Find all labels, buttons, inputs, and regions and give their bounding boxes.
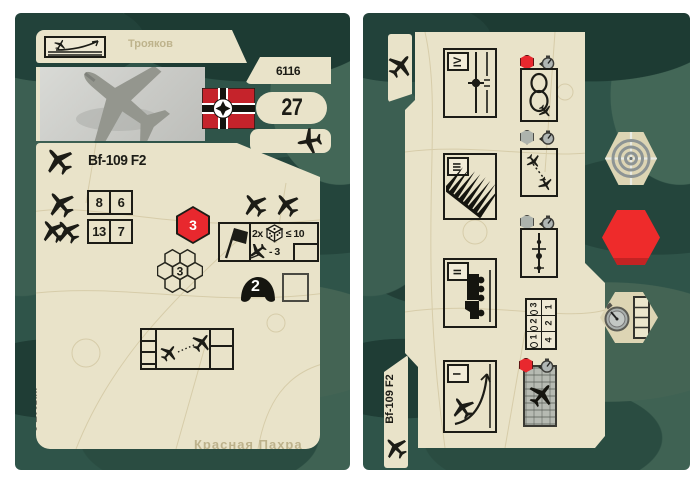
- paired-aircraft-icon: [42, 213, 80, 249]
- attack-empty-cell: [293, 243, 317, 260]
- aircraft-icon: [386, 52, 414, 80]
- aircraft-icon: [383, 435, 409, 461]
- stat-value: 8: [89, 192, 111, 213]
- supply-truck-icon: [448, 270, 496, 322]
- card-tab-title: Bf-109 F2: [384, 355, 408, 468]
- range-value: 2: [543, 321, 553, 326]
- unit-title: Bf-109 F2: [384, 369, 396, 429]
- aircraft-icon: [295, 128, 325, 154]
- phase-box-ii: II: [443, 258, 497, 328]
- dogfight-result-cells: [209, 330, 232, 368]
- stat-value: 7: [111, 221, 131, 242]
- aircraft-photo-frame: [36, 67, 205, 141]
- gray-hex-marker: [520, 130, 534, 145]
- gunfire-icon: [446, 159, 496, 219]
- attack-panel: 2x ≤ 10 - 3: [218, 222, 319, 262]
- point-value-pill: 27: [256, 92, 327, 124]
- range-row: 3 1: [527, 300, 555, 316]
- target-crosshair-token[interactable]: [605, 132, 657, 185]
- maneuver-header: [520, 215, 558, 229]
- dice-icon: [265, 224, 284, 243]
- point-value: 27: [281, 94, 302, 122]
- stopwatch-icon: [536, 358, 555, 373]
- card-body: Красная Пахра Bf-109 F2 8 6: [36, 143, 320, 449]
- range-label: 2: [529, 318, 539, 323]
- stopwatch-track-token[interactable]: [600, 292, 658, 343]
- attack-threshold: ≤ 10: [286, 228, 304, 240]
- maneuver-header: [519, 358, 557, 372]
- unit-code: 6116: [276, 64, 300, 78]
- copyright: © Zvezda: [34, 375, 50, 447]
- morale-empty-box: [282, 273, 309, 302]
- takeoff-icon: [445, 362, 495, 430]
- dogfight-icon: [158, 333, 214, 364]
- unit-title: Bf-109 F2: [88, 152, 146, 169]
- assault-flag-icon: [220, 224, 251, 260]
- strafing-aircraft-icon: [249, 244, 269, 260]
- range-row: 1 4: [527, 332, 555, 348]
- range-value: 1: [543, 305, 553, 310]
- city-attack-icon: [523, 365, 557, 427]
- range-dot-icon: [530, 310, 538, 315]
- formation-value: 3: [177, 265, 184, 279]
- altitude-change-icon: [520, 228, 558, 278]
- aircraft-photo: [40, 67, 205, 141]
- range-dot-icon: [530, 342, 538, 348]
- initiative-hex-marker: 3: [176, 206, 210, 244]
- range-table: 3 1 2 2 1 4: [525, 298, 557, 350]
- initiative-value: 3: [189, 217, 197, 233]
- card-tab-top: [388, 34, 412, 102]
- stat-box: 8 6: [87, 190, 133, 215]
- stat-value: 13: [89, 221, 111, 242]
- maneuver-header: [520, 130, 558, 144]
- unit-type-tab: [250, 129, 331, 153]
- aircraft-climb-icon: [44, 36, 106, 58]
- dogfight-step-track: [142, 330, 157, 368]
- range-value: 4: [543, 337, 553, 342]
- red-hexagon-token[interactable]: [602, 210, 660, 265]
- range-dot-icon: [530, 326, 538, 331]
- helmet-icon: 2: [238, 274, 278, 306]
- patrol-flight-icon: [445, 50, 494, 115]
- range-label: 1: [529, 334, 539, 339]
- attack-roll-row: 2x ≤ 10: [249, 224, 317, 243]
- phase-box-iv: IV: [443, 48, 497, 118]
- attack-modifier: - 3: [269, 246, 280, 258]
- air-combat-icon: [520, 148, 558, 197]
- aircraft-icon: [40, 146, 78, 176]
- stat-box: 13 7: [87, 219, 133, 244]
- phase-box-i: I: [443, 360, 497, 433]
- order-panel: IV III: [405, 32, 605, 448]
- formation-hex-cluster: 3: [157, 245, 203, 297]
- product-scan: Трояков: [0, 0, 700, 480]
- stopwatch-icon: [537, 130, 556, 145]
- maneuver-header: [520, 55, 558, 69]
- aircraft-pair-icon: [241, 191, 303, 219]
- morale-value: 2: [251, 278, 260, 296]
- german-war-flag-icon: [202, 88, 255, 129]
- red-hex-marker: [519, 358, 533, 373]
- map-label: Красная Пахра: [194, 437, 303, 452]
- loop-maneuver-icon: [520, 68, 558, 122]
- phase-box-iii: III: [443, 153, 497, 220]
- unit-code-tab: 6116: [245, 57, 331, 84]
- unit-card[interactable]: Трояков: [15, 13, 350, 470]
- range-row: 2 2: [527, 316, 555, 332]
- attack-multiplier: 2x: [252, 228, 263, 240]
- map-label: Трояков: [128, 38, 173, 50]
- dogfight-panel: [140, 328, 234, 370]
- order-card[interactable]: IV III: [363, 13, 690, 470]
- stat-value: 6: [111, 192, 131, 213]
- range-label: 3: [529, 302, 539, 307]
